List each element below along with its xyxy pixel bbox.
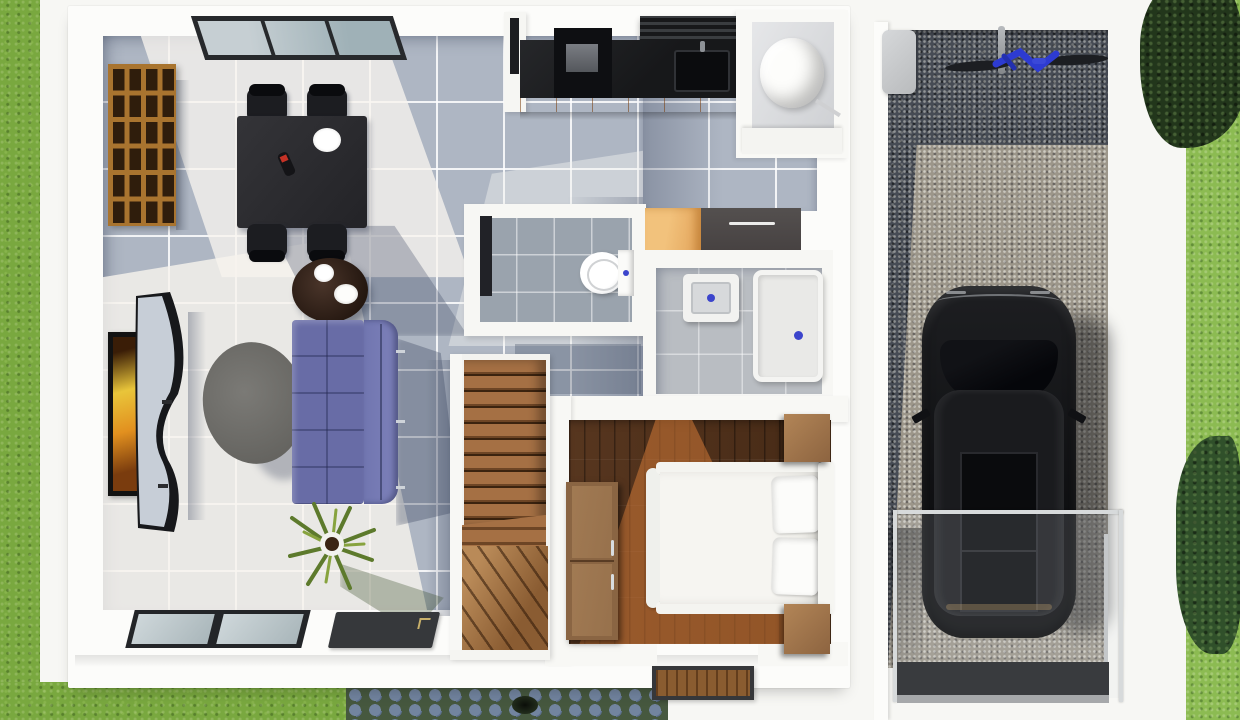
kitchen-faucet xyxy=(700,41,705,52)
nightstand xyxy=(784,414,830,462)
car-roof-rail xyxy=(1030,291,1050,294)
tv-console xyxy=(134,290,190,534)
shower-drain-mark xyxy=(794,331,803,340)
kitchen-door-opening xyxy=(510,18,519,74)
kitchen-sink xyxy=(674,50,730,92)
ramp-kerb xyxy=(897,695,1109,703)
glass-railing-frame xyxy=(893,510,1123,514)
utility-wall xyxy=(742,128,842,154)
tree-canopy xyxy=(1140,0,1240,148)
glass-pane xyxy=(216,614,303,644)
stair-treads xyxy=(464,360,546,526)
entry-glass-door xyxy=(125,610,310,648)
window-mullion xyxy=(324,21,339,55)
dresser-handle xyxy=(611,574,614,590)
car-roof-rail xyxy=(946,291,966,294)
serving-plate xyxy=(313,128,341,152)
dining-table xyxy=(237,116,367,228)
water-heater xyxy=(760,38,824,108)
bicycle xyxy=(944,42,1110,82)
pillow xyxy=(771,475,820,534)
chair-backrest xyxy=(249,84,285,96)
mat-corner-mark xyxy=(417,618,431,629)
car-hood-line xyxy=(936,294,1062,310)
garage-wall xyxy=(874,22,888,720)
chair-backrest xyxy=(249,250,285,262)
sofa-seat-cushions xyxy=(292,320,364,504)
sofa-backrest-crease xyxy=(380,324,382,500)
cooktop-pot xyxy=(566,44,598,72)
dresser xyxy=(566,482,618,640)
bathroom-sink xyxy=(683,274,739,322)
wine-bottle xyxy=(277,151,297,177)
dresser-door xyxy=(572,486,612,558)
dresser-divider xyxy=(570,560,614,562)
sofa xyxy=(292,320,398,504)
bookshelf-shadow xyxy=(176,80,190,230)
cobblestone-path xyxy=(346,688,668,720)
dresser-door xyxy=(572,564,612,636)
sofa-leg xyxy=(396,420,405,423)
garden-bush xyxy=(1176,436,1240,654)
bedroom-wall xyxy=(545,642,657,666)
bed-foot-rail xyxy=(646,468,660,608)
sofa-leg xyxy=(396,486,405,489)
bowl xyxy=(334,284,358,304)
window-mullion xyxy=(261,21,276,55)
toilet-seat xyxy=(587,259,621,291)
utility-room xyxy=(736,10,848,158)
glass-pane xyxy=(131,614,214,644)
dining-chair xyxy=(307,224,347,258)
stair-stringer-wall xyxy=(450,354,462,658)
bathroom xyxy=(643,250,833,400)
dining-chair xyxy=(247,224,287,258)
lawn-left xyxy=(0,0,40,720)
bedroom-doormat xyxy=(652,666,754,700)
kitchen-cabinet-fronts xyxy=(520,98,738,112)
window-glazing xyxy=(191,16,407,60)
entry-mat xyxy=(328,612,440,648)
stair-landing-edge xyxy=(450,650,550,660)
round-coffee-table xyxy=(292,258,368,322)
sink-tap-mark xyxy=(707,294,715,302)
flush-button xyxy=(623,270,629,276)
bottle-label xyxy=(280,154,289,162)
cooktop xyxy=(554,28,612,98)
wardrobe-handle xyxy=(729,222,775,225)
headboard xyxy=(818,462,834,614)
shower-tray xyxy=(753,270,823,382)
pillow xyxy=(771,537,820,596)
floorplan-scene xyxy=(0,0,1240,720)
driveway-ramp xyxy=(897,662,1109,698)
toilet-cistern xyxy=(618,250,634,296)
chair-backrest xyxy=(309,84,345,96)
bowl xyxy=(314,264,334,282)
path-drain xyxy=(512,696,538,714)
toilet-room xyxy=(464,204,646,336)
stair-winders xyxy=(456,546,548,656)
glass-railing-frame xyxy=(1119,510,1123,702)
bed xyxy=(646,462,834,614)
bookshelf xyxy=(108,64,176,226)
nightstand xyxy=(784,604,830,654)
house-plant xyxy=(284,500,380,594)
storage-box xyxy=(882,30,916,94)
dresser-handle xyxy=(611,540,614,556)
sofa-leg xyxy=(396,350,405,353)
counter-shadow xyxy=(520,112,738,120)
toilet-room-door xyxy=(480,216,492,296)
tv-console-shadow xyxy=(188,312,206,520)
